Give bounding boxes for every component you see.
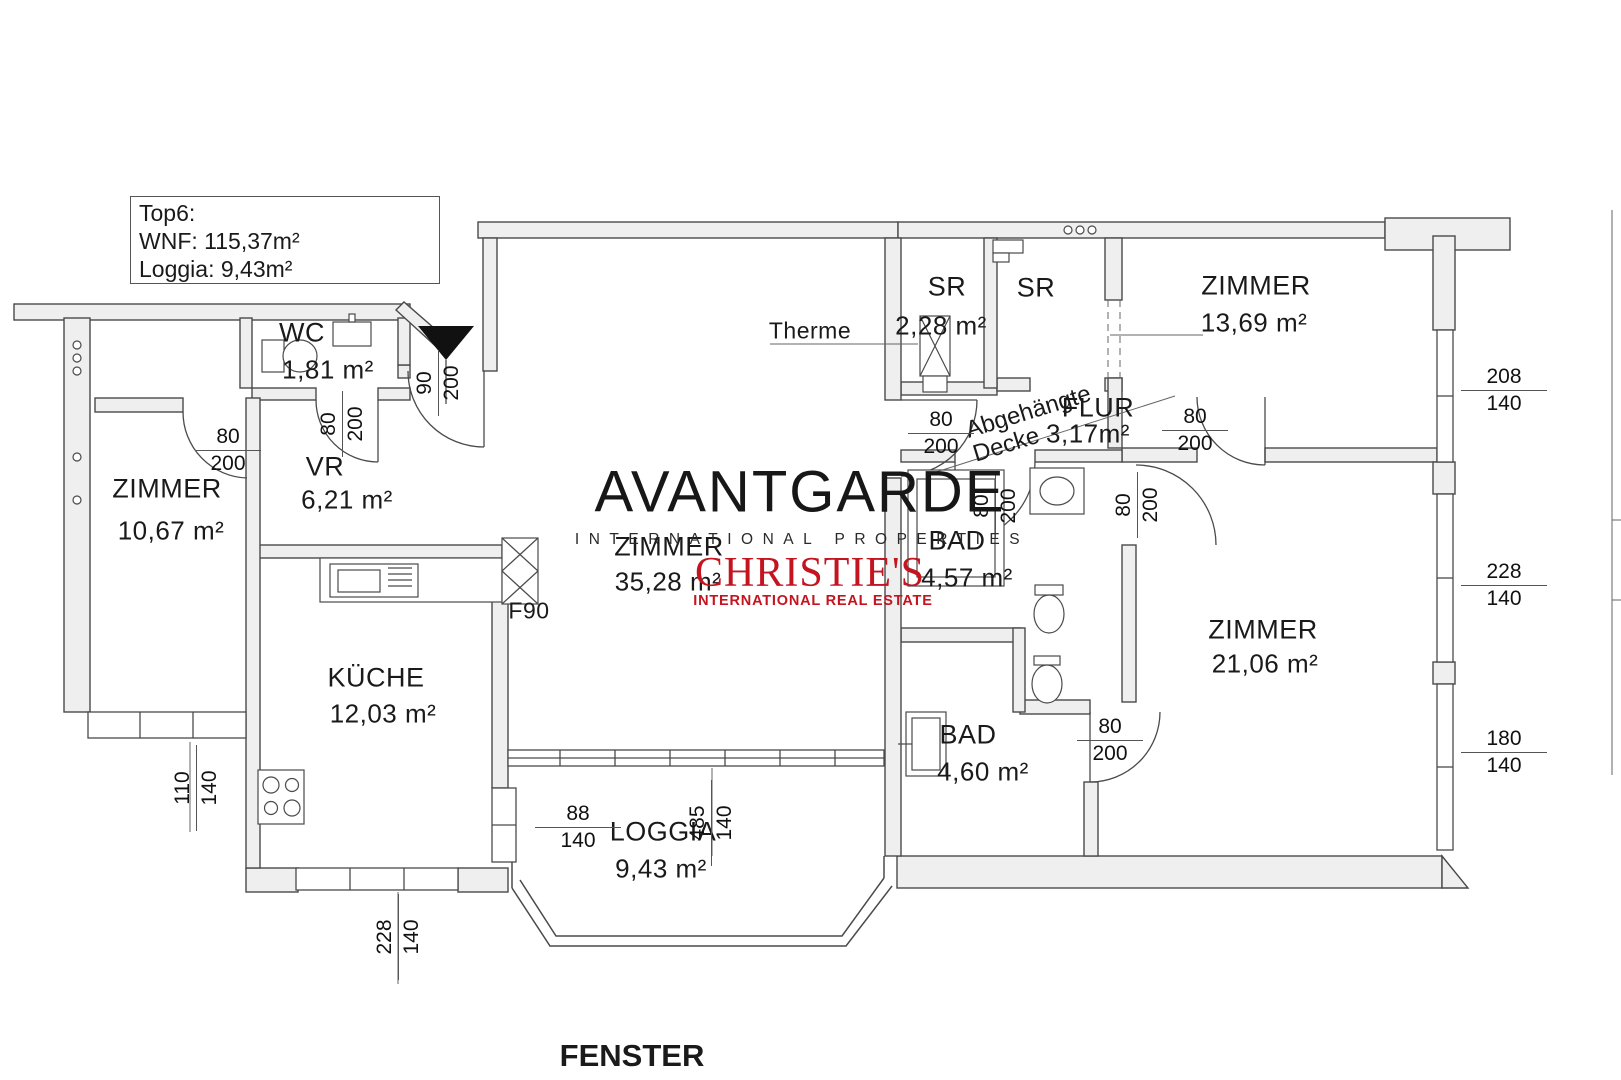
f90-shaft xyxy=(502,538,538,604)
room-area-wc: 1,81 m² xyxy=(282,355,374,386)
f90-label: F90 xyxy=(508,598,549,625)
sr-step xyxy=(993,240,1023,253)
dim-window-right-mid: 228 140 xyxy=(1461,561,1547,609)
wc-sink xyxy=(333,322,371,346)
toilet-upper xyxy=(1034,595,1064,633)
dim-door-wc: 80 200 xyxy=(318,391,366,457)
info-box: Top6: WNF: 115,37m² Loggia: 9,43m² xyxy=(130,196,440,284)
watermark-partner: CHRISTIE'S xyxy=(695,549,925,597)
dim-window-right-bottom: 180 140 xyxy=(1461,728,1547,776)
floor-plan: Top6: WNF: 115,37m² Loggia: 9,43m² WC 1,… xyxy=(0,0,1621,1080)
room-label-zimmer-right: ZIMMER xyxy=(1208,615,1317,646)
room-label-kueche: KÜCHE xyxy=(327,663,424,694)
info-top: Top6: xyxy=(139,199,439,227)
watermark-brand: AVANTGARDE xyxy=(594,459,1005,526)
room-area-bad-lower: 4,60 m² xyxy=(937,757,1029,788)
dim-door-entrance: 90 200 xyxy=(414,350,462,416)
dim-door-hall: 80 200 xyxy=(908,409,974,457)
room-label-bad-lower: BAD xyxy=(939,720,996,751)
room-area-zimmer-top-right: 13,69 m² xyxy=(1201,308,1308,339)
toilet-mid-tank xyxy=(1034,656,1060,665)
window-kitchen xyxy=(296,868,458,890)
room-area-bad-upper: 4,57 m² xyxy=(921,563,1013,594)
vent-circle xyxy=(1076,226,1084,234)
toilet-upper-tank xyxy=(1035,585,1063,595)
dim-window-loggia-front: 485 140 xyxy=(687,780,735,866)
info-wnf: WNF: 115,37m² xyxy=(139,227,439,255)
dim-window-kitchen: 228 140 xyxy=(374,894,422,980)
dim-door-flur-right: 80 200 xyxy=(1162,406,1228,454)
dim-window-loggia-side: 88 140 xyxy=(535,803,621,851)
room-area-kueche: 12,03 m² xyxy=(330,699,437,730)
vent-circle xyxy=(1088,226,1096,234)
room-area-zimmer-right: 21,06 m² xyxy=(1212,649,1319,680)
vent-circle xyxy=(1064,226,1072,234)
room-label-zimmer-left: ZIMMER xyxy=(112,474,221,505)
dim-door-bad-lower: 80 200 xyxy=(1077,716,1143,764)
toilet-mid xyxy=(1032,665,1062,703)
therme-label: Therme xyxy=(769,318,851,345)
dim-door-zimmer-right: 80 200 xyxy=(1113,472,1161,538)
dim-door-zimmer-left: 80 200 xyxy=(195,426,261,474)
room-label-sr-small: SR xyxy=(928,272,967,303)
window-zimmer-left xyxy=(88,712,246,738)
kitchen-stove xyxy=(258,770,304,824)
dim-window-right-top: 208 140 xyxy=(1461,366,1547,414)
watermark-brand-subtitle: INTERNATIONAL PROPERTIES xyxy=(575,531,1029,549)
room-area-sr-small: 2,28 m² xyxy=(895,311,987,342)
info-loggia: Loggia: 9,43m² xyxy=(139,255,439,283)
fenster-heading: FENSTER xyxy=(560,1038,705,1074)
room-area-vr: 6,21 m² xyxy=(301,485,393,516)
room-label-wc: WC xyxy=(279,318,325,349)
room-label-zimmer-top-right: ZIMMER xyxy=(1201,271,1310,302)
dim-window-left: 110 140 xyxy=(172,745,220,831)
room-area-zimmer-left: 10,67 m² xyxy=(118,516,225,547)
room-label-sr-large: SR xyxy=(1017,273,1056,304)
watermark-partner-subtitle: INTERNATIONAL REAL ESTATE xyxy=(693,593,932,609)
